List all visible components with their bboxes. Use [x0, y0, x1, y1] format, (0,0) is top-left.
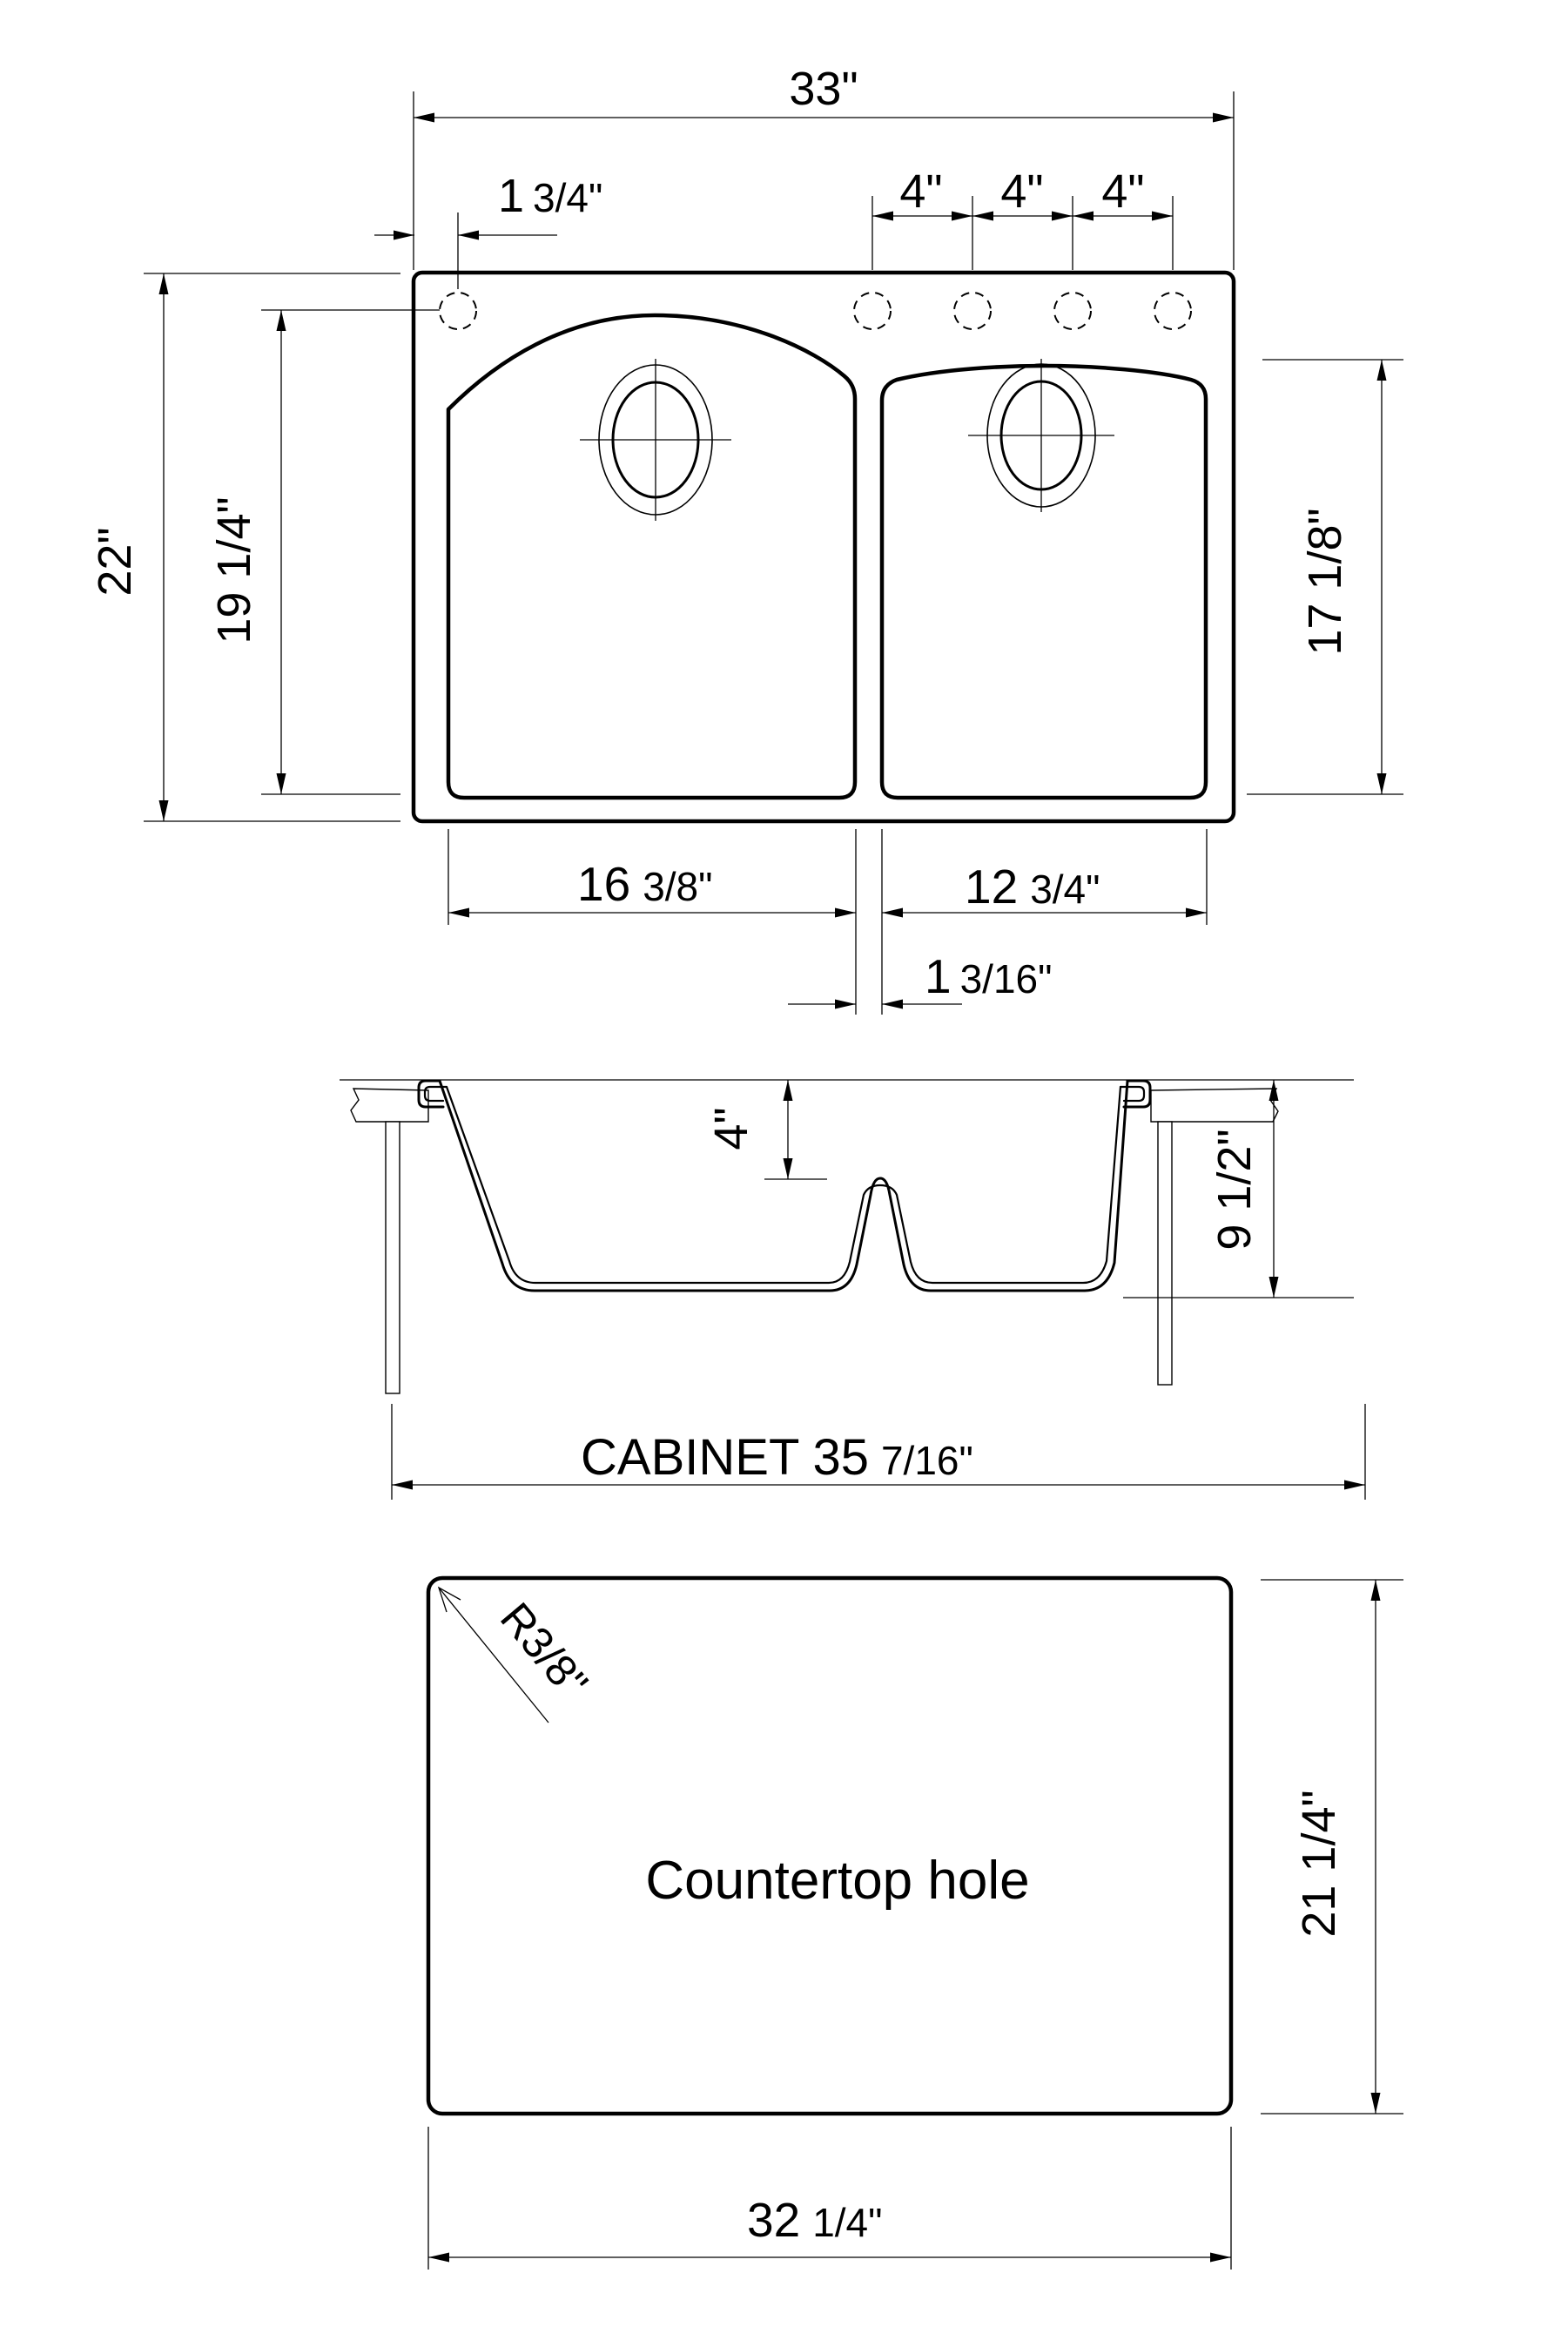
dim-overall-width-label: 33" [789, 63, 858, 115]
dim-right-bowl-depth-label: 17 1/8" [1299, 508, 1351, 655]
sink-rim-outline [414, 273, 1234, 821]
cabinet-side-right [1158, 1122, 1172, 1385]
dim-right-bowl-width-label: 123/4" [965, 860, 1100, 914]
countertop-left [351, 1089, 428, 1122]
dim-faucet-spacing: 4" 4" 4" [872, 165, 1173, 270]
sink-section-inner [447, 1087, 1120, 1283]
dim-cabinet: CABINET 357/16" [392, 1404, 1365, 1500]
dim-divider-height-label: 4" [705, 1107, 757, 1150]
dim-cutout-width-label: 321/4" [747, 2193, 882, 2247]
dim-overall-depth-label: 22" [89, 527, 141, 596]
section-view: 4" 9 1/2" CABINET 357/16" [340, 1080, 1365, 1500]
dim-faucet-spacing-label: 4" [899, 165, 942, 218]
dim-faucet-spacing-label: 4" [1101, 165, 1144, 218]
dim-cutout-width: 321/4" [428, 2127, 1231, 2270]
cabinet-side-left [386, 1122, 400, 1393]
dim-faucet-spacing-label: 4" [1000, 165, 1043, 218]
dim-left-bowl-width: 163/8" [448, 829, 882, 1015]
dim-bowl-depth-label: 9 1/2" [1208, 1129, 1261, 1250]
sink-dimension-drawing: 33" 13/4" 4" 4" 4" 22" [0, 0, 1568, 2327]
top-view: 33" 13/4" 4" 4" 4" 22" [89, 63, 1403, 1015]
dim-divider-label: 13/16" [925, 949, 1052, 1003]
dim-left-bowl-depth-label: 19 1/4" [208, 496, 260, 644]
dim-cabinet-label: CABINET 357/16" [581, 1429, 973, 1486]
dim-divider-height: 4" [705, 1080, 827, 1179]
dim-cutout-height-label: 21 1/4" [1293, 1790, 1345, 1937]
dim-cutout-height: 21 1/4" [1261, 1580, 1403, 2114]
dim-faucet-offset-label: 13/4" [498, 170, 602, 222]
countertop-right [1151, 1089, 1278, 1122]
dim-divider: 13/16" [788, 949, 1052, 1009]
dim-left-bowl-width-label: 163/8" [577, 857, 712, 911]
cutout-label: Countertop hole [645, 1851, 1029, 1911]
dim-right-bowl-width: 123/4" [882, 829, 1207, 925]
sink-section-outer [440, 1081, 1127, 1291]
dim-left-bowl-depth: 19 1/4" [208, 310, 440, 794]
sink-lip-right-inner [1120, 1087, 1144, 1101]
dim-right-bowl-depth: 17 1/8" [1247, 360, 1403, 794]
cutout-view: R3/8" Countertop hole 21 1/4" 321/4" [428, 1578, 1403, 2270]
